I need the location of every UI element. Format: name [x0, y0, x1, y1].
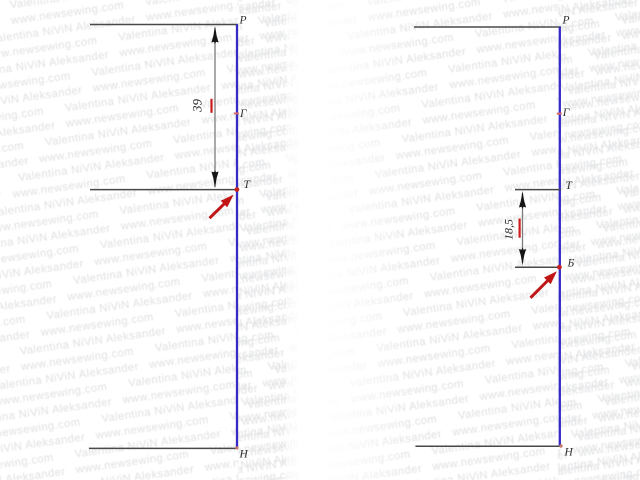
- svg-text:Б: Б: [567, 258, 575, 270]
- svg-text:Г: Г: [239, 108, 247, 120]
- svg-text:Г: Г: [562, 107, 570, 119]
- svg-text:18,5: 18,5: [502, 219, 516, 240]
- svg-text:Р: Р: [239, 15, 247, 27]
- svg-text:39: 39: [190, 99, 205, 114]
- svg-text:Р: Р: [562, 15, 570, 27]
- svg-text:Н: Н: [564, 447, 574, 459]
- svg-text:Н: Н: [239, 449, 249, 461]
